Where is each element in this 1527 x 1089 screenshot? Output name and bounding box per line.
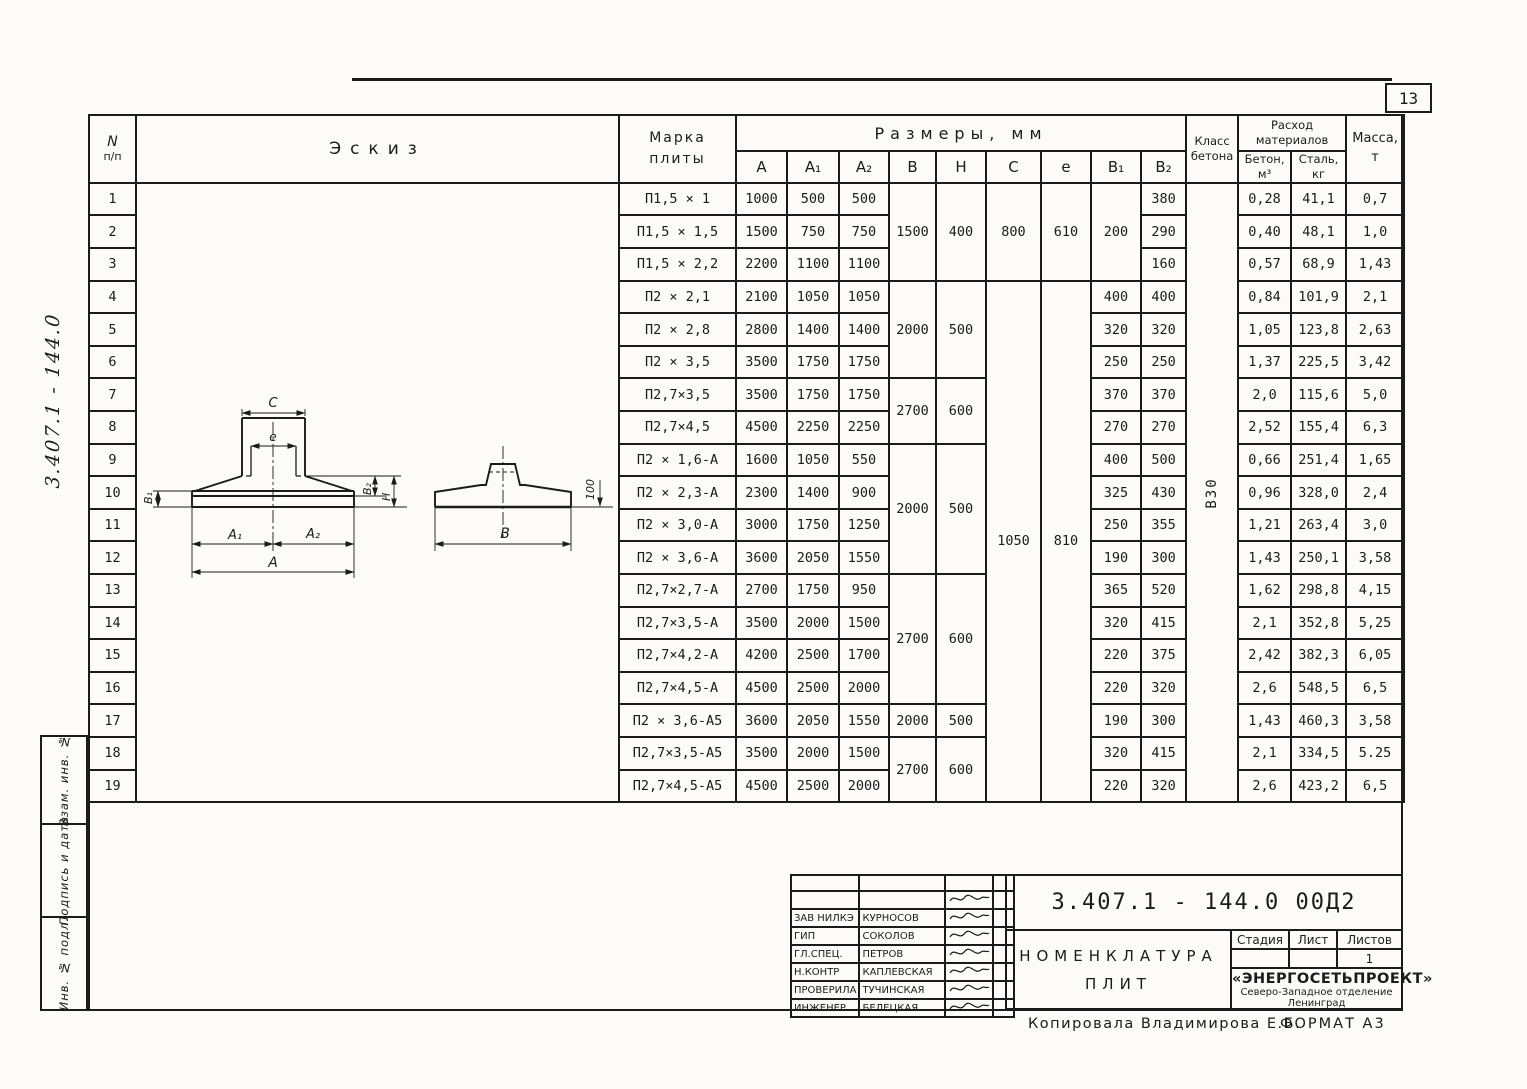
row-2-concrete: 0,40 xyxy=(1238,215,1291,248)
sig-cell-r4c1: Петров xyxy=(859,945,945,963)
row-16-mark: П2,7×4,5-А xyxy=(619,672,736,705)
dim-label-a2: А₂ xyxy=(305,527,320,542)
row-14-b1: 320 xyxy=(1091,607,1141,640)
row-5-b1: 320 xyxy=(1091,313,1141,346)
row-6-concrete: 1,37 xyxy=(1238,346,1291,379)
row-15-a1: 2500 xyxy=(787,639,839,672)
row-16-concrete: 2,6 xyxy=(1238,672,1291,705)
row-2-b2: 290 xyxy=(1141,215,1186,248)
dim-label-b1: В₁ xyxy=(143,492,155,504)
sig-cell-r2c2 xyxy=(945,909,993,927)
row-14-steel: 352,8 xyxy=(1291,607,1346,640)
group-b-18: 2700 xyxy=(889,737,936,802)
row-17-concrete: 1,43 xyxy=(1238,704,1291,737)
row-9-num: 9 xyxy=(89,444,136,477)
row-8-num: 8 xyxy=(89,411,136,444)
col-header-concrete-class: Классбетона xyxy=(1186,115,1238,183)
row-14-mass: 5,25 xyxy=(1346,607,1404,640)
signature-table-region: Зав НИЛКЭКурносовГИПСоколовГл.спец.Петро… xyxy=(790,874,1015,1018)
sig-cell-r6c0: Проверила xyxy=(791,981,859,999)
col-header-mark: Маркаплиты xyxy=(619,115,736,183)
row-10-mass: 2,4 xyxy=(1346,476,1404,509)
row-1-a2: 500 xyxy=(839,183,889,216)
row-5-a: 2800 xyxy=(736,313,787,346)
row-6-steel: 225,5 xyxy=(1291,346,1346,379)
row-12-steel: 250,1 xyxy=(1291,541,1346,574)
col-header-dimensions: Размеры, мм xyxy=(736,115,1186,151)
group-h-17: 500 xyxy=(936,704,986,737)
row-16-num: 16 xyxy=(89,672,136,705)
row-14-num: 14 xyxy=(89,607,136,640)
title-block-title-box: НОМЕНКЛАТУРА ПЛИТ xyxy=(1005,929,1232,1010)
sheet-col-header: Лист xyxy=(1288,929,1338,950)
row-4-steel: 101,9 xyxy=(1291,281,1346,314)
group-e-4: 810 xyxy=(1041,281,1091,803)
row-11-num: 11 xyxy=(89,509,136,542)
row-12-mark: П2 × 3,6-А xyxy=(619,541,736,574)
row-11-a2: 1250 xyxy=(839,509,889,542)
group-b-7: 2700 xyxy=(889,378,936,443)
sheets-value: 1 xyxy=(1336,948,1403,969)
concrete-class-cell: В30 xyxy=(1186,183,1238,802)
group-h-18: 600 xyxy=(936,737,986,802)
sidebar-field-podpis: Подпись и дата xyxy=(40,823,88,918)
row-8-b1: 270 xyxy=(1091,411,1141,444)
row-2-a1: 750 xyxy=(787,215,839,248)
col-header-material-consumption: Расходматериалов xyxy=(1238,115,1346,151)
row-3-a: 2200 xyxy=(736,248,787,281)
sig-cell-r6c1: Тучинская xyxy=(859,981,945,999)
row-9-b2: 500 xyxy=(1141,444,1186,477)
dim-label-e: е xyxy=(269,430,276,444)
col-header-dim-0: А xyxy=(736,151,787,183)
organization-city: Ленинград xyxy=(1232,998,1401,1009)
sig-cell-r3c3 xyxy=(993,927,1014,945)
row-7-num: 7 xyxy=(89,378,136,411)
row-12-b1: 190 xyxy=(1091,541,1141,574)
row-13-num: 13 xyxy=(89,574,136,607)
row-1-a: 1000 xyxy=(736,183,787,216)
sig-cell-r0c2 xyxy=(945,875,993,891)
col-header-dim-5: С xyxy=(986,151,1041,183)
row-10-num: 10 xyxy=(89,476,136,509)
row-7-steel: 115,6 xyxy=(1291,378,1346,411)
sig-cell-r7c2 xyxy=(945,999,993,1017)
row-12-mass: 3,58 xyxy=(1346,541,1404,574)
sig-cell-r4c2 xyxy=(945,945,993,963)
row-4-num: 4 xyxy=(89,281,136,314)
row-16-b1: 220 xyxy=(1091,672,1141,705)
organization-name: «ЭНЕРГОСЕТЬПРОЕКТ» xyxy=(1232,971,1401,987)
signature-scribble xyxy=(948,892,990,905)
row-11-b1: 250 xyxy=(1091,509,1141,542)
row-11-b2: 355 xyxy=(1141,509,1186,542)
row-9-mass: 1,65 xyxy=(1346,444,1404,477)
row-15-concrete: 2,42 xyxy=(1238,639,1291,672)
col-header-sketch: Эскиз xyxy=(136,115,619,183)
row-8-a2: 2250 xyxy=(839,411,889,444)
group-b-4: 2000 xyxy=(889,281,936,379)
group-c-4: 1050 xyxy=(986,281,1041,803)
row-15-num: 15 xyxy=(89,639,136,672)
row-17-a2: 1550 xyxy=(839,704,889,737)
row-16-a: 4500 xyxy=(736,672,787,705)
row-2-a2: 750 xyxy=(839,215,889,248)
group-h-4: 500 xyxy=(936,281,986,379)
row-7-a2: 1750 xyxy=(839,378,889,411)
row-19-b2: 320 xyxy=(1141,770,1186,803)
col-header-dim-3: В xyxy=(889,151,936,183)
row-4-a: 2100 xyxy=(736,281,787,314)
row-3-concrete: 0,57 xyxy=(1238,248,1291,281)
row-13-b2: 520 xyxy=(1141,574,1186,607)
dim-label-c: С xyxy=(268,396,278,411)
col-header-dim-4: Н xyxy=(936,151,986,183)
row-17-mass: 3,58 xyxy=(1346,704,1404,737)
row-19-num: 19 xyxy=(89,770,136,803)
row-6-a: 3500 xyxy=(736,346,787,379)
scanned-drawing-sheet: 13 Nп/пЭскизМаркаплитыРазмеры, ммКлассбе… xyxy=(0,0,1527,1089)
sig-cell-r5c2 xyxy=(945,963,993,981)
row-4-a2: 1050 xyxy=(839,281,889,314)
dim-label-100: 100 xyxy=(584,479,597,500)
row-13-a2: 950 xyxy=(839,574,889,607)
group-b-1: 1500 xyxy=(889,183,936,281)
row-13-a: 2700 xyxy=(736,574,787,607)
dim-label-b: В xyxy=(500,526,510,542)
page-number-box: 13 xyxy=(1385,83,1432,113)
row-9-mark: П2 × 1,6-А xyxy=(619,444,736,477)
row-3-a1: 1100 xyxy=(787,248,839,281)
row-12-num: 12 xyxy=(89,541,136,574)
row-1-mark: П1,5 × 1 xyxy=(619,183,736,216)
row-4-mark: П2 × 2,1 xyxy=(619,281,736,314)
row-12-a: 3600 xyxy=(736,541,787,574)
sig-cell-r2c3 xyxy=(993,909,1014,927)
signature-scribble xyxy=(948,946,990,959)
row-14-a2: 1500 xyxy=(839,607,889,640)
row-5-steel: 123,8 xyxy=(1291,313,1346,346)
row-19-a: 4500 xyxy=(736,770,787,803)
col-header-steel: Сталь,кг xyxy=(1291,151,1346,183)
row-6-mark: П2 × 3,5 xyxy=(619,346,736,379)
row-13-a1: 1750 xyxy=(787,574,839,607)
socket-lines xyxy=(246,446,301,476)
row-17-num: 17 xyxy=(89,704,136,737)
group-h-1: 400 xyxy=(936,183,986,281)
row-5-mass: 2,63 xyxy=(1346,313,1404,346)
dim-label-b2: В₂ xyxy=(361,482,374,495)
row-18-num: 18 xyxy=(89,737,136,770)
row-7-a: 3500 xyxy=(736,378,787,411)
row-11-mark: П2 × 3,0-А xyxy=(619,509,736,542)
row-7-b1: 370 xyxy=(1091,378,1141,411)
sig-cell-r0c1 xyxy=(859,875,945,891)
row-15-b1: 220 xyxy=(1091,639,1141,672)
dim-label-a: А xyxy=(267,555,278,571)
sig-cell-r7c0: Инженер xyxy=(791,999,859,1017)
row-11-a1: 1750 xyxy=(787,509,839,542)
row-12-a2: 1550 xyxy=(839,541,889,574)
sig-cell-r3c1: Соколов xyxy=(859,927,945,945)
sig-cell-r4c0: Гл.спец. xyxy=(791,945,859,963)
row-4-b2: 400 xyxy=(1141,281,1186,314)
stage-value xyxy=(1230,948,1290,969)
row-5-concrete: 1,05 xyxy=(1238,313,1291,346)
row-2-steel: 48,1 xyxy=(1291,215,1346,248)
signature-scribble xyxy=(948,982,990,995)
row-14-concrete: 2,1 xyxy=(1238,607,1291,640)
row-12-b2: 300 xyxy=(1141,541,1186,574)
organization-box: «ЭНЕРГОСЕТЬПРОЕКТ» Северо-Западное отдел… xyxy=(1230,967,1403,1010)
col-header-concrete: Бетон,м³ xyxy=(1238,151,1291,183)
row-5-a2: 1400 xyxy=(839,313,889,346)
sig-cell-r3c2 xyxy=(945,927,993,945)
group-c-1: 800 xyxy=(986,183,1041,281)
doc-number: 3.407.1 - 144.0 00Д2 xyxy=(1052,890,1357,915)
sig-cell-r0c0 xyxy=(791,875,859,891)
row-9-a1: 1050 xyxy=(787,444,839,477)
row-9-a2: 550 xyxy=(839,444,889,477)
row-9-b1: 400 xyxy=(1091,444,1141,477)
row-18-concrete: 2,1 xyxy=(1238,737,1291,770)
row-7-mass: 5,0 xyxy=(1346,378,1404,411)
row-13-b1: 365 xyxy=(1091,574,1141,607)
row-10-a1: 1400 xyxy=(787,476,839,509)
col-header-num: Nп/п xyxy=(89,115,136,183)
row-3-b2: 160 xyxy=(1141,248,1186,281)
col-header-dim-8: В₂ xyxy=(1141,151,1186,183)
handwritten-margin-note: 3.407.1 - 144.0 xyxy=(42,312,64,490)
row-1-steel: 41,1 xyxy=(1291,183,1346,216)
centerlines xyxy=(273,422,503,538)
sig-cell-r6c3 xyxy=(993,981,1014,999)
sheet-top-border xyxy=(352,78,1392,81)
row-8-mark: П2,7×4,5 xyxy=(619,411,736,444)
sig-cell-r5c0: Н.контр xyxy=(791,963,859,981)
group-h-7: 600 xyxy=(936,378,986,443)
row-9-a: 1600 xyxy=(736,444,787,477)
col-header-dim-2: А₂ xyxy=(839,151,889,183)
row-16-steel: 548,5 xyxy=(1291,672,1346,705)
row-15-a2: 1700 xyxy=(839,639,889,672)
row-7-mark: П2,7×3,5 xyxy=(619,378,736,411)
row-15-a: 4200 xyxy=(736,639,787,672)
row-19-a2: 2000 xyxy=(839,770,889,803)
row-10-mark: П2 × 2,3-А xyxy=(619,476,736,509)
row-18-a2: 1500 xyxy=(839,737,889,770)
row-19-mark: П2,7×4,5-А5 xyxy=(619,770,736,803)
group-b-13: 2700 xyxy=(889,574,936,704)
row-6-a1: 1750 xyxy=(787,346,839,379)
row-15-b2: 375 xyxy=(1141,639,1186,672)
page-number: 13 xyxy=(1399,89,1418,108)
row-10-b2: 430 xyxy=(1141,476,1186,509)
row-18-mass: 5.25 xyxy=(1346,737,1404,770)
group-b-9: 2000 xyxy=(889,444,936,574)
sheets-col-header: Листов xyxy=(1336,929,1403,950)
row-10-concrete: 0,96 xyxy=(1238,476,1291,509)
row-18-steel: 334,5 xyxy=(1291,737,1346,770)
sig-cell-r5c1: Каплевская xyxy=(859,963,945,981)
title-block-doc-number-box: 3.407.1 - 144.0 00Д2 xyxy=(1005,874,1403,931)
row-18-a1: 2000 xyxy=(787,737,839,770)
group-h-13: 600 xyxy=(936,574,986,704)
row-2-num: 2 xyxy=(89,215,136,248)
row-4-concrete: 0,84 xyxy=(1238,281,1291,314)
row-17-steel: 460,3 xyxy=(1291,704,1346,737)
row-5-mark: П2 × 2,8 xyxy=(619,313,736,346)
stage-col-header: Стадия xyxy=(1230,929,1290,950)
row-1-concrete: 0,28 xyxy=(1238,183,1291,216)
row-12-a1: 2050 xyxy=(787,541,839,574)
signature-scribble xyxy=(948,1000,990,1013)
sidebar-field-inv: Инв. № подл. xyxy=(40,916,88,1011)
col-header-dim-6: е xyxy=(1041,151,1091,183)
row-6-mass: 3,42 xyxy=(1346,346,1404,379)
row-18-mark: П2,7×3,5-А5 xyxy=(619,737,736,770)
row-10-b1: 325 xyxy=(1091,476,1141,509)
sig-cell-r2c1: Курносов xyxy=(859,909,945,927)
row-19-mass: 6,5 xyxy=(1346,770,1404,803)
col-header-mass: Масса,т xyxy=(1346,115,1404,183)
row-17-a: 3600 xyxy=(736,704,787,737)
sheet-value xyxy=(1288,948,1338,969)
row-5-num: 5 xyxy=(89,313,136,346)
row-19-concrete: 2,6 xyxy=(1238,770,1291,803)
organization-branch: Северо-Западное отделение xyxy=(1232,987,1401,998)
sig-cell-r1c0 xyxy=(791,891,859,909)
row-17-b2: 300 xyxy=(1141,704,1186,737)
group-e-1: 610 xyxy=(1041,183,1091,281)
signature-scribble xyxy=(948,910,990,923)
row-14-b2: 415 xyxy=(1141,607,1186,640)
row-16-mass: 6,5 xyxy=(1346,672,1404,705)
plate-section-sketch: С е В₁ В₂ Н А₁ А₂ А В 100 xyxy=(143,388,626,593)
row-16-a2: 2000 xyxy=(839,672,889,705)
row-1-mass: 0,7 xyxy=(1346,183,1404,216)
group-b1-1: 200 xyxy=(1091,183,1141,281)
row-1-num: 1 xyxy=(89,183,136,216)
row-10-steel: 328,0 xyxy=(1291,476,1346,509)
sig-cell-r5c3 xyxy=(993,963,1014,981)
signature-scribble xyxy=(948,964,990,977)
row-18-a: 3500 xyxy=(736,737,787,770)
row-13-mark: П2,7×2,7-А xyxy=(619,574,736,607)
row-1-a1: 500 xyxy=(787,183,839,216)
row-19-a1: 2500 xyxy=(787,770,839,803)
row-7-a1: 1750 xyxy=(787,378,839,411)
row-8-b2: 270 xyxy=(1141,411,1186,444)
doc-title-line2: ПЛИТ xyxy=(1085,975,1152,993)
row-8-a1: 2250 xyxy=(787,411,839,444)
row-15-steel: 382,3 xyxy=(1291,639,1346,672)
row-13-mass: 4,15 xyxy=(1346,574,1404,607)
row-13-concrete: 1,62 xyxy=(1238,574,1291,607)
row-8-steel: 155,4 xyxy=(1291,411,1346,444)
row-16-b2: 320 xyxy=(1141,672,1186,705)
row-17-mark: П2 × 3,6-А5 xyxy=(619,704,736,737)
row-14-a: 3500 xyxy=(736,607,787,640)
sig-cell-r1c1 xyxy=(859,891,945,909)
dim-label-a1: А₁ xyxy=(227,528,242,543)
row-5-a1: 1400 xyxy=(787,313,839,346)
sig-cell-r7c3 xyxy=(993,999,1014,1017)
signature-scribble xyxy=(948,928,990,941)
row-17-a1: 2050 xyxy=(787,704,839,737)
sig-cell-r0c3 xyxy=(993,875,1014,891)
row-9-concrete: 0,66 xyxy=(1238,444,1291,477)
footer-copied-by: Копировала Владимирова Е.Б. xyxy=(1028,1016,1301,1032)
row-6-b2: 250 xyxy=(1141,346,1186,379)
row-6-num: 6 xyxy=(89,346,136,379)
signature-table: Зав НИЛКЭКурносовГИПСоколовГл.спец.Петро… xyxy=(790,874,1015,1018)
row-14-mark: П2,7×3,5-А xyxy=(619,607,736,640)
col-header-dim-7: В₁ xyxy=(1091,151,1141,183)
row-18-b1: 320 xyxy=(1091,737,1141,770)
row-8-a: 4500 xyxy=(736,411,787,444)
row-13-steel: 298,8 xyxy=(1291,574,1346,607)
row-10-a2: 900 xyxy=(839,476,889,509)
row-7-concrete: 2,0 xyxy=(1238,378,1291,411)
row-8-concrete: 2,52 xyxy=(1238,411,1291,444)
sidebar-field-vzam: Взам. инв. № xyxy=(40,735,88,825)
row-3-a2: 1100 xyxy=(839,248,889,281)
row-2-mark: П1,5 × 1,5 xyxy=(619,215,736,248)
row-3-num: 3 xyxy=(89,248,136,281)
row-9-steel: 251,4 xyxy=(1291,444,1346,477)
row-6-b1: 250 xyxy=(1091,346,1141,379)
row-2-a: 1500 xyxy=(736,215,787,248)
col-header-dim-1: А₁ xyxy=(787,151,839,183)
row-2-mass: 1,0 xyxy=(1346,215,1404,248)
row-3-mark: П1,5 × 2,2 xyxy=(619,248,736,281)
row-4-b1: 400 xyxy=(1091,281,1141,314)
sig-cell-r2c0: Зав НИЛКЭ xyxy=(791,909,859,927)
dim-label-h: Н xyxy=(380,493,393,501)
row-6-a2: 1750 xyxy=(839,346,889,379)
sig-cell-r4c3 xyxy=(993,945,1014,963)
row-15-mark: П2,7×4,2-А xyxy=(619,639,736,672)
row-4-a1: 1050 xyxy=(787,281,839,314)
sig-cell-r7c1: Белецкая xyxy=(859,999,945,1017)
row-11-mass: 3,0 xyxy=(1346,509,1404,542)
row-3-steel: 68,9 xyxy=(1291,248,1346,281)
row-11-concrete: 1,21 xyxy=(1238,509,1291,542)
row-16-a1: 2500 xyxy=(787,672,839,705)
footer-format: ФОРМАТ А3 xyxy=(1280,1016,1386,1032)
row-14-a1: 2000 xyxy=(787,607,839,640)
row-11-a: 3000 xyxy=(736,509,787,542)
doc-title-line1: НОМЕНКЛАТУРА xyxy=(1019,947,1218,965)
row-5-b2: 320 xyxy=(1141,313,1186,346)
row-18-b2: 415 xyxy=(1141,737,1186,770)
row-15-mass: 6,05 xyxy=(1346,639,1404,672)
sig-cell-r1c3 xyxy=(993,891,1014,909)
row-17-b1: 190 xyxy=(1091,704,1141,737)
row-1-b2: 380 xyxy=(1141,183,1186,216)
sig-cell-r3c0: ГИП xyxy=(791,927,859,945)
row-11-steel: 263,4 xyxy=(1291,509,1346,542)
row-19-b1: 220 xyxy=(1091,770,1141,803)
row-8-mass: 6,3 xyxy=(1346,411,1404,444)
sketch-region: С е В₁ В₂ Н А₁ А₂ А В 100 xyxy=(143,388,626,593)
row-10-a: 2300 xyxy=(736,476,787,509)
row-19-steel: 423,2 xyxy=(1291,770,1346,803)
sig-cell-r1c2 xyxy=(945,891,993,909)
sig-cell-r6c2 xyxy=(945,981,993,999)
row-4-mass: 2,1 xyxy=(1346,281,1404,314)
